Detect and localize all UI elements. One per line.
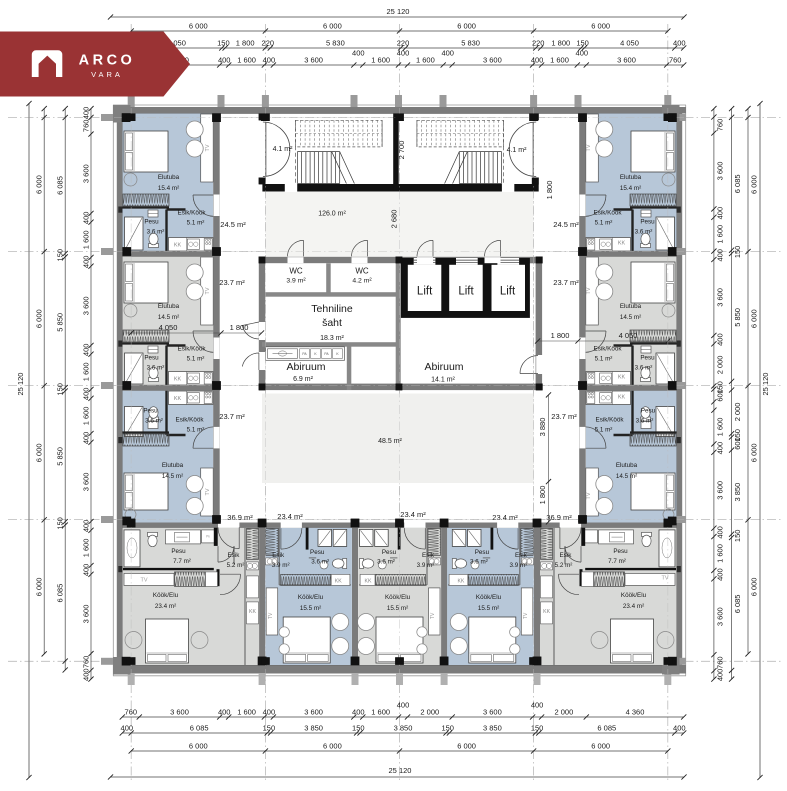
svg-text:400: 400	[715, 526, 724, 539]
svg-text:6 000: 6 000	[750, 578, 759, 597]
svg-text:400: 400	[715, 249, 724, 262]
svg-text:Pesu: Pesu	[144, 219, 159, 226]
svg-text:1 800: 1 800	[230, 323, 249, 332]
svg-text:150: 150	[263, 724, 276, 733]
svg-text:WC: WC	[355, 267, 369, 276]
svg-text:23.4 m²: 23.4 m²	[400, 510, 426, 519]
svg-text:Esik: Esik	[560, 552, 573, 559]
svg-text:4 050: 4 050	[620, 39, 639, 48]
svg-text:6 000: 6 000	[35, 443, 44, 462]
svg-text:18.3 m²: 18.3 m²	[320, 335, 344, 342]
svg-text:5.1 m²: 5.1 m²	[187, 356, 205, 363]
svg-text:1 600: 1 600	[715, 418, 724, 437]
svg-text:TV: TV	[205, 287, 211, 294]
svg-text:TV: TV	[523, 612, 529, 619]
svg-text:3 850: 3 850	[394, 724, 413, 733]
svg-text:1 600: 1 600	[237, 708, 256, 717]
svg-text:14.1 m²: 14.1 m²	[431, 377, 455, 384]
svg-text:Abiruum: Abiruum	[286, 361, 325, 373]
svg-text:Pk: Pk	[206, 534, 210, 538]
svg-text:6 000: 6 000	[457, 742, 476, 751]
svg-text:KK: KK	[618, 240, 626, 246]
svg-text:1 600: 1 600	[715, 225, 724, 244]
svg-text:14.5 m²: 14.5 m²	[158, 314, 179, 321]
svg-text:Pesu: Pesu	[640, 219, 655, 226]
svg-text:Köök/Elu: Köök/Elu	[385, 594, 411, 601]
svg-text:400: 400	[82, 388, 91, 401]
svg-text:3 600: 3 600	[715, 481, 724, 500]
svg-text:3.6 m²: 3.6 m²	[635, 365, 653, 372]
svg-text:150: 150	[576, 39, 589, 48]
svg-text:1 600: 1 600	[371, 56, 390, 65]
svg-text:220: 220	[532, 39, 545, 48]
svg-text:PA: PA	[302, 352, 307, 356]
svg-text:3.9 m²: 3.9 m²	[509, 562, 527, 569]
svg-text:Elutuba: Elutuba	[616, 462, 638, 469]
svg-text:600: 600	[715, 389, 724, 402]
svg-text:Tehniline: Tehniline	[311, 303, 353, 315]
svg-text:Elutuba: Elutuba	[158, 174, 180, 181]
svg-text:Pesu: Pesu	[144, 355, 159, 362]
svg-text:Esik/Köök: Esik/Köök	[596, 417, 625, 424]
svg-text:Pesu: Pesu	[613, 548, 628, 555]
svg-text:3 880: 3 880	[538, 418, 547, 437]
svg-text:5.1 m²: 5.1 m²	[595, 220, 613, 227]
svg-text:6 085: 6 085	[56, 176, 65, 195]
svg-text:400: 400	[352, 49, 365, 58]
svg-text:4 360: 4 360	[626, 708, 645, 717]
svg-text:5.1 m²: 5.1 m²	[187, 427, 205, 434]
svg-text:3.9 m²: 3.9 m²	[272, 562, 290, 569]
svg-text:2 680: 2 680	[390, 210, 399, 229]
svg-text:TV: TV	[140, 577, 147, 583]
svg-text:400: 400	[352, 708, 365, 717]
svg-text:760: 760	[715, 656, 724, 669]
svg-text:400: 400	[82, 256, 91, 269]
svg-text:6 000: 6 000	[750, 175, 759, 194]
svg-text:šaht: šaht	[322, 317, 342, 329]
svg-text:5.1 m²: 5.1 m²	[595, 427, 613, 434]
svg-text:Elutuba: Elutuba	[162, 462, 184, 469]
svg-text:4.2 m²: 4.2 m²	[352, 278, 372, 285]
svg-text:4.1 m²: 4.1 m²	[273, 146, 294, 153]
svg-text:600: 600	[733, 437, 742, 450]
svg-text:25 120: 25 120	[387, 7, 410, 16]
svg-text:6 085: 6 085	[733, 595, 742, 614]
svg-text:150: 150	[56, 383, 65, 396]
svg-text:5.1 m²: 5.1 m²	[187, 220, 205, 227]
svg-text:Köök/Elu: Köök/Elu	[153, 592, 179, 599]
svg-text:3 600: 3 600	[82, 605, 91, 624]
svg-text:23.7 m²: 23.7 m²	[551, 412, 577, 421]
svg-text:2 000: 2 000	[715, 356, 724, 375]
svg-text:Lift: Lift	[417, 286, 433, 298]
svg-text:Esik: Esik	[515, 552, 528, 559]
svg-text:48.5 m²: 48.5 m²	[378, 438, 402, 445]
svg-text:5 850: 5 850	[733, 308, 742, 327]
svg-text:6 000: 6 000	[35, 578, 44, 597]
svg-text:Esik: Esik	[272, 552, 285, 559]
svg-text:25 120: 25 120	[16, 373, 25, 396]
svg-text:23.7 m²: 23.7 m²	[553, 278, 579, 287]
svg-text:3 600: 3 600	[715, 288, 724, 307]
svg-text:Köök/Elu: Köök/Elu	[298, 594, 324, 601]
svg-text:Esik/Köök: Esik/Köök	[178, 346, 207, 353]
svg-text:400: 400	[397, 49, 410, 58]
svg-text:6 000: 6 000	[750, 309, 759, 328]
svg-text:3 850: 3 850	[733, 483, 742, 502]
svg-text:Esik: Esik	[228, 552, 241, 559]
svg-text:2 000: 2 000	[555, 708, 574, 717]
svg-text:TV: TV	[268, 612, 274, 619]
svg-text:3.6 m²: 3.6 m²	[470, 558, 488, 565]
svg-text:400: 400	[263, 56, 276, 65]
svg-text:400: 400	[82, 212, 91, 225]
svg-text:150: 150	[217, 39, 230, 48]
svg-text:220: 220	[397, 39, 410, 48]
svg-text:6.9 m²: 6.9 m²	[293, 376, 314, 383]
svg-text:25 120: 25 120	[761, 373, 770, 396]
svg-text:3.6 m²: 3.6 m²	[147, 365, 165, 372]
svg-text:5 830: 5 830	[326, 39, 345, 48]
svg-text:14.5 m²: 14.5 m²	[162, 473, 183, 480]
svg-text:400: 400	[218, 708, 231, 717]
svg-text:TV: TV	[586, 144, 592, 151]
svg-text:150: 150	[56, 249, 65, 262]
svg-text:24.5 m²: 24.5 m²	[220, 220, 246, 229]
svg-text:Elutuba: Elutuba	[158, 303, 180, 310]
svg-text:1 600: 1 600	[715, 544, 724, 563]
svg-text:KK: KK	[174, 376, 182, 382]
svg-text:400: 400	[121, 724, 134, 733]
svg-text:Pesu: Pesu	[143, 408, 158, 415]
svg-text:150: 150	[733, 530, 742, 543]
svg-text:1 600: 1 600	[82, 230, 91, 249]
svg-text:5.2 m²: 5.2 m²	[227, 562, 245, 569]
svg-text:KK: KK	[174, 242, 182, 248]
svg-text:400: 400	[715, 568, 724, 581]
svg-text:TV: TV	[586, 287, 592, 294]
svg-text:6 085: 6 085	[733, 174, 742, 193]
svg-text:2 000: 2 000	[420, 708, 439, 717]
svg-text:400: 400	[715, 207, 724, 220]
svg-text:KK: KK	[457, 579, 464, 585]
svg-text:Lift: Lift	[458, 286, 474, 298]
svg-text:1 800: 1 800	[236, 39, 255, 48]
svg-text:400: 400	[715, 442, 724, 455]
svg-text:3 600: 3 600	[170, 708, 189, 717]
svg-text:23.7 m²: 23.7 m²	[219, 412, 245, 421]
svg-text:1 600: 1 600	[237, 56, 256, 65]
svg-text:1 800: 1 800	[538, 486, 547, 505]
svg-text:760: 760	[669, 56, 682, 65]
svg-text:400: 400	[263, 708, 276, 717]
svg-text:150: 150	[56, 517, 65, 530]
svg-text:3 600: 3 600	[304, 708, 323, 717]
svg-text:24.5 m²: 24.5 m²	[553, 220, 579, 229]
svg-text:400: 400	[218, 56, 231, 65]
svg-text:KK: KK	[543, 609, 550, 615]
svg-text:Elutuba: Elutuba	[620, 303, 642, 310]
svg-text:6 000: 6 000	[323, 742, 342, 751]
svg-text:400: 400	[531, 701, 544, 710]
svg-text:Köök/Elu: Köök/Elu	[621, 592, 647, 599]
svg-text:TV: TV	[586, 492, 592, 499]
svg-text:3 600: 3 600	[304, 56, 323, 65]
svg-text:400: 400	[715, 333, 724, 346]
svg-text:Abiruum: Abiruum	[424, 361, 463, 373]
svg-text:23.7 m²: 23.7 m²	[219, 278, 245, 287]
svg-text:25 120: 25 120	[389, 766, 412, 775]
svg-text:3 600: 3 600	[483, 56, 502, 65]
svg-text:KK: KK	[618, 395, 626, 401]
svg-text:1 600: 1 600	[550, 56, 569, 65]
svg-text:ARCO: ARCO	[79, 53, 136, 69]
svg-text:1 600: 1 600	[371, 708, 390, 717]
svg-text:3.9 m²: 3.9 m²	[417, 562, 435, 569]
svg-text:5 850: 5 850	[56, 447, 65, 466]
svg-text:1 800: 1 800	[545, 181, 554, 200]
svg-text:6 000: 6 000	[750, 443, 759, 462]
svg-text:6 085: 6 085	[190, 724, 209, 733]
svg-text:23.4 m²: 23.4 m²	[155, 603, 176, 610]
svg-text:150: 150	[441, 724, 454, 733]
svg-text:36.9 m²: 36.9 m²	[227, 513, 253, 522]
svg-text:15.5 m²: 15.5 m²	[387, 605, 408, 612]
svg-text:6 000: 6 000	[457, 22, 476, 31]
svg-text:2 700: 2 700	[397, 141, 406, 160]
svg-text:3.6 m²: 3.6 m²	[635, 229, 653, 236]
svg-text:3 600: 3 600	[82, 473, 91, 492]
svg-text:760: 760	[715, 119, 724, 132]
svg-text:5 850: 5 850	[56, 313, 65, 332]
svg-text:Esik/Köök: Esik/Köök	[594, 210, 623, 217]
svg-text:3.6 m²: 3.6 m²	[377, 558, 395, 565]
svg-text:15.4 m²: 15.4 m²	[620, 185, 641, 192]
svg-text:23.4 m²: 23.4 m²	[492, 513, 518, 522]
svg-text:Köök/Elu: Köök/Elu	[476, 594, 502, 601]
svg-text:3 600: 3 600	[617, 56, 636, 65]
svg-text:3 850: 3 850	[304, 724, 323, 733]
svg-text:Pesu: Pesu	[171, 548, 186, 555]
svg-text:400: 400	[82, 107, 91, 120]
svg-text:3 600: 3 600	[715, 162, 724, 181]
svg-text:14.5 m²: 14.5 m²	[616, 473, 637, 480]
svg-text:Pesu: Pesu	[640, 355, 655, 362]
svg-text:150: 150	[531, 724, 544, 733]
svg-text:TV: TV	[205, 144, 211, 151]
svg-text:6 000: 6 000	[35, 309, 44, 328]
svg-text:3 600: 3 600	[82, 296, 91, 315]
svg-text:Esik: Esik	[422, 552, 435, 559]
svg-text:5.2 m²: 5.2 m²	[555, 562, 573, 569]
svg-text:6 085: 6 085	[56, 584, 65, 603]
svg-text:1 800: 1 800	[551, 331, 570, 340]
svg-text:1 600: 1 600	[82, 539, 91, 558]
svg-text:3.6 m²: 3.6 m²	[636, 418, 654, 425]
svg-text:23.4 m²: 23.4 m²	[623, 603, 644, 610]
svg-text:400: 400	[82, 668, 91, 681]
svg-text:3 600: 3 600	[82, 164, 91, 183]
svg-text:15.4 m²: 15.4 m²	[158, 185, 179, 192]
svg-text:15.5 m²: 15.5 m²	[478, 605, 499, 612]
svg-text:PA: PA	[324, 352, 329, 356]
svg-text:3.6 m²: 3.6 m²	[147, 229, 165, 236]
svg-text:400: 400	[441, 49, 454, 58]
svg-text:400: 400	[397, 701, 410, 710]
svg-text:400: 400	[82, 520, 91, 533]
svg-text:400: 400	[82, 432, 91, 445]
svg-text:220: 220	[262, 39, 275, 48]
svg-text:400: 400	[673, 39, 686, 48]
svg-text:TV: TV	[430, 612, 436, 619]
svg-text:1 600: 1 600	[82, 362, 91, 381]
svg-text:Esik/Köök: Esik/Köök	[594, 346, 623, 353]
svg-text:400: 400	[576, 49, 589, 58]
svg-text:400: 400	[82, 344, 91, 357]
svg-text:4.1 m²: 4.1 m²	[507, 147, 528, 154]
svg-text:Pesu: Pesu	[475, 549, 490, 556]
svg-text:400: 400	[531, 56, 544, 65]
svg-text:2 000: 2 000	[733, 403, 742, 422]
svg-text:3.9 m²: 3.9 m²	[286, 278, 306, 285]
svg-text:3.6 m²: 3.6 m²	[145, 418, 163, 425]
svg-text:6 000: 6 000	[35, 175, 44, 194]
svg-text:126.0 m²: 126.0 m²	[318, 211, 346, 218]
svg-text:6 000: 6 000	[189, 742, 208, 751]
svg-text:Elutuba: Elutuba	[620, 174, 642, 181]
svg-text:760: 760	[125, 708, 138, 717]
svg-text:400: 400	[715, 669, 724, 682]
svg-text:6 000: 6 000	[591, 22, 610, 31]
svg-text:KK: KK	[249, 609, 256, 615]
svg-text:1 800: 1 800	[551, 39, 570, 48]
svg-text:5.1 m²: 5.1 m²	[595, 356, 613, 363]
svg-text:1 600: 1 600	[416, 56, 435, 65]
svg-text:TV: TV	[205, 488, 211, 495]
svg-text:Esik/Köök: Esik/Köök	[178, 210, 207, 217]
svg-text:7.7 m²: 7.7 m²	[173, 558, 191, 565]
svg-text:3.6 m²: 3.6 m²	[311, 558, 329, 565]
svg-text:760: 760	[82, 120, 91, 133]
svg-text:Lift: Lift	[500, 286, 516, 298]
svg-text:3 600: 3 600	[715, 607, 724, 626]
svg-text:6 000: 6 000	[323, 22, 342, 31]
svg-text:WC: WC	[289, 267, 303, 276]
svg-text:15.5 m²: 15.5 m²	[300, 605, 321, 612]
svg-text:6 085: 6 085	[597, 724, 616, 733]
svg-text:3 600: 3 600	[483, 708, 502, 717]
svg-text:VARA: VARA	[91, 70, 123, 79]
svg-text:150: 150	[352, 724, 365, 733]
svg-text:400: 400	[82, 564, 91, 577]
svg-text:400: 400	[673, 724, 686, 733]
svg-text:Esik/Köök: Esik/Köök	[176, 417, 205, 424]
svg-text:Pesu: Pesu	[641, 408, 656, 415]
svg-text:6 000: 6 000	[591, 742, 610, 751]
svg-text:6 000: 6 000	[189, 22, 208, 31]
svg-text:7.7 m²: 7.7 m²	[608, 558, 626, 565]
svg-text:4 050: 4 050	[159, 323, 178, 332]
svg-text:Pesu: Pesu	[310, 549, 325, 556]
svg-text:1 600: 1 600	[82, 407, 91, 426]
svg-text:14.5 m²: 14.5 m²	[620, 314, 641, 321]
svg-text:5 830: 5 830	[461, 39, 480, 48]
svg-text:3 850: 3 850	[483, 724, 502, 733]
svg-text:KK: KK	[365, 579, 372, 585]
svg-text:760: 760	[82, 656, 91, 669]
svg-text:Pesu: Pesu	[382, 549, 397, 556]
svg-text:KK: KK	[174, 396, 182, 402]
svg-text:KK: KK	[335, 579, 342, 585]
svg-text:150: 150	[733, 246, 742, 259]
svg-text:4 050: 4 050	[619, 331, 638, 340]
svg-text:KK: KK	[618, 374, 626, 380]
